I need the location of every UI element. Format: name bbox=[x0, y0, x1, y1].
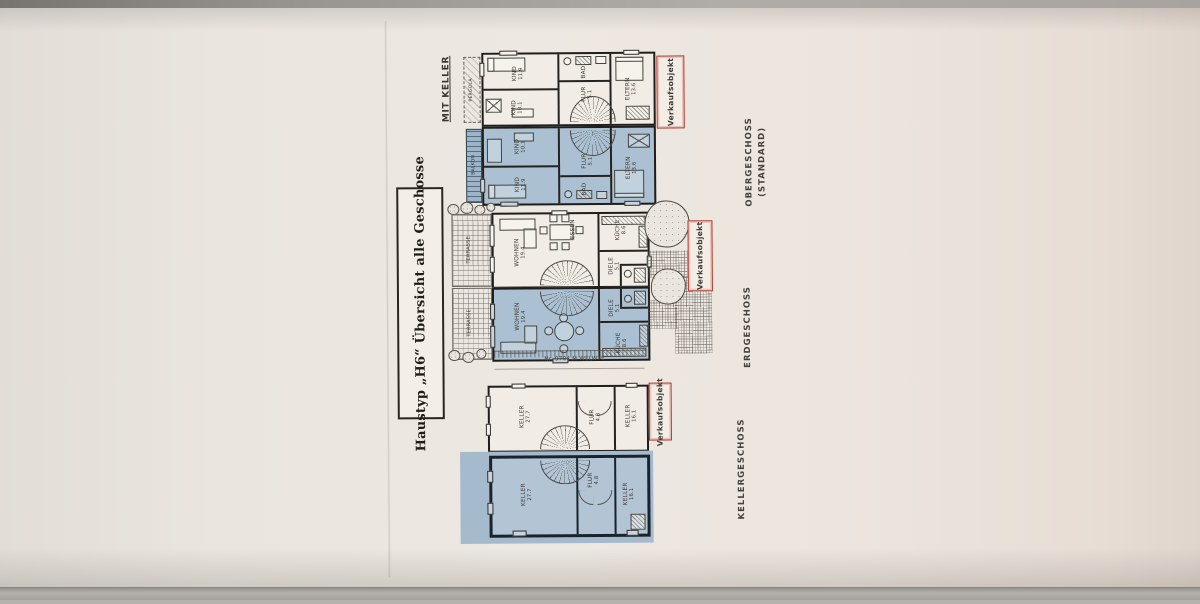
window bbox=[623, 50, 639, 55]
wall bbox=[620, 264, 648, 266]
window bbox=[487, 503, 493, 515]
mit-keller-note: MIT KELLER bbox=[441, 56, 451, 122]
shrub-icon bbox=[486, 203, 495, 212]
window bbox=[627, 530, 639, 536]
room-label-pergola: PERGOLA bbox=[469, 78, 474, 101]
sink-icon bbox=[595, 56, 606, 64]
window bbox=[490, 257, 495, 273]
stairs-icon bbox=[540, 260, 594, 285]
room-label-flur: FLUR4.8 bbox=[589, 409, 602, 424]
room-label-kueche: KÜCHE8.6 bbox=[615, 219, 628, 240]
room-label-kind: KIND11.9 bbox=[512, 66, 525, 81]
toilet-icon bbox=[624, 270, 632, 278]
chair-icon bbox=[550, 242, 558, 250]
room-label-bad: BAD bbox=[582, 183, 589, 196]
dimension-line bbox=[494, 368, 644, 370]
bed-pillow-icon bbox=[615, 57, 643, 62]
bed-pillow-icon bbox=[614, 193, 644, 198]
stairs-icon bbox=[540, 460, 590, 484]
window bbox=[490, 326, 495, 348]
room-label-wohnen: WOHNEN19.4 bbox=[515, 302, 528, 330]
wall bbox=[600, 321, 648, 323]
room-label-keller: KELLER27.7 bbox=[519, 405, 532, 428]
wall bbox=[557, 54, 559, 124]
door-swing-icon bbox=[578, 490, 593, 505]
room-label-keller: KELLER27.7 bbox=[521, 483, 534, 506]
stairs-icon bbox=[540, 425, 590, 449]
chair-icon bbox=[575, 326, 584, 335]
title-box: Haustyp „H6“ Übersicht alle Geschosse bbox=[396, 187, 445, 419]
chair-icon bbox=[544, 326, 553, 335]
room-label-kind: KIND11.9 bbox=[515, 177, 528, 192]
bed-icon bbox=[487, 139, 502, 163]
room-label-bad: BAD bbox=[581, 66, 588, 79]
room-label-essen: ESSEN bbox=[570, 219, 577, 239]
wall bbox=[560, 175, 610, 177]
round-table-icon bbox=[554, 321, 574, 341]
stairs-icon bbox=[540, 291, 594, 316]
tree-icon bbox=[644, 200, 689, 247]
window bbox=[500, 202, 518, 207]
room-label-kind: KIND10.1 bbox=[511, 100, 524, 115]
verkaufsobjekt-tag-og: Verkaufsobjekt bbox=[656, 55, 685, 128]
wall bbox=[484, 165, 558, 168]
shaft-icon bbox=[630, 514, 645, 530]
window bbox=[487, 471, 493, 483]
toilet-icon bbox=[563, 57, 571, 65]
room-label-wohnen: WOHNEN19.4 bbox=[514, 238, 527, 266]
kitchen-counter-icon bbox=[639, 325, 648, 347]
verkaufsobjekt-tag-eg: Verkaufsobjekt bbox=[687, 220, 712, 291]
window bbox=[551, 210, 567, 215]
room-label-balkon: BALKON bbox=[471, 155, 476, 175]
room-label-terrasse: TERRASSE bbox=[467, 236, 473, 264]
wall bbox=[484, 88, 558, 91]
window bbox=[486, 396, 491, 408]
shrub-icon bbox=[460, 202, 473, 214]
window bbox=[490, 304, 495, 320]
sink-icon bbox=[634, 268, 646, 283]
window bbox=[486, 424, 491, 436]
wall bbox=[598, 289, 600, 359]
window bbox=[499, 51, 517, 56]
chair-icon bbox=[549, 214, 557, 222]
plan-caption: Nr. 9704 M WELWTE bbox=[544, 356, 604, 362]
window bbox=[479, 63, 484, 77]
room-label-flur: FLUR5.1 bbox=[581, 86, 594, 101]
chair-icon bbox=[562, 242, 570, 250]
wall bbox=[600, 250, 648, 252]
chair-icon bbox=[539, 226, 547, 234]
room-label-kind: KIND10.1 bbox=[515, 139, 528, 154]
wall bbox=[559, 80, 609, 82]
room-label-terrasse: TERRASSE bbox=[467, 309, 473, 337]
wall bbox=[614, 387, 616, 450]
wardrobe-icon bbox=[486, 99, 502, 113]
chair-icon bbox=[559, 313, 568, 322]
window bbox=[513, 531, 527, 537]
sink-icon bbox=[596, 191, 607, 199]
toilet-icon bbox=[564, 190, 572, 198]
room-label-keller: KELLER16.1 bbox=[623, 482, 636, 505]
page-title: Haustyp „H6“ Übersicht alle Geschosse bbox=[412, 156, 429, 451]
window bbox=[489, 225, 494, 247]
toilet-icon bbox=[624, 295, 632, 303]
room-label-diele: DIELE5.1 bbox=[609, 299, 622, 317]
wall bbox=[620, 307, 648, 309]
room-label-flur: FLUR5.1 bbox=[582, 153, 595, 168]
door-swing-icon bbox=[597, 490, 612, 505]
room-label-eltern: ELTERN13.6 bbox=[625, 77, 638, 100]
shrub-icon bbox=[448, 350, 460, 361]
wardrobe-icon bbox=[626, 106, 650, 120]
window bbox=[624, 201, 640, 206]
room-label-eltern: ELTERN13.6 bbox=[626, 156, 639, 179]
wall bbox=[614, 458, 617, 534]
sink-icon bbox=[634, 291, 646, 305]
window bbox=[512, 384, 526, 389]
floor-label-erdgeschoss: ERDGESCHOSS bbox=[742, 286, 755, 368]
bathtub-icon bbox=[575, 56, 591, 65]
shrub-icon bbox=[476, 349, 486, 359]
chair-icon bbox=[561, 214, 569, 222]
shrub-icon bbox=[462, 352, 474, 363]
bed-pillow-icon bbox=[487, 58, 494, 72]
floor-label-kellergeschoss: KELLERGESCHOSS bbox=[735, 419, 748, 520]
room-label-flur: FLUR4.8 bbox=[588, 472, 601, 487]
window bbox=[626, 383, 638, 388]
room-label-diele: DIELE5.1 bbox=[608, 257, 621, 275]
window bbox=[480, 179, 485, 193]
paper-crease bbox=[384, 21, 391, 577]
floor-label-obergeschoss: OBERGESCHOSS (STANDARD) bbox=[743, 117, 769, 207]
bed-pillow-icon bbox=[488, 185, 495, 199]
wardrobe-icon bbox=[628, 134, 650, 148]
room-label-keller: KELLER16.1 bbox=[625, 404, 638, 427]
wall bbox=[558, 128, 561, 203]
photo-of-floor-plan-sheet: Haustyp „H6“ Übersicht alle Geschosse MI… bbox=[0, 0, 1200, 600]
drawing-sheet-content: Haustyp „H6“ Übersicht alle Geschosse MI… bbox=[0, 0, 1200, 604]
verkaufsobjekt-tag-kg: Verkaufsobjekt bbox=[649, 383, 672, 441]
